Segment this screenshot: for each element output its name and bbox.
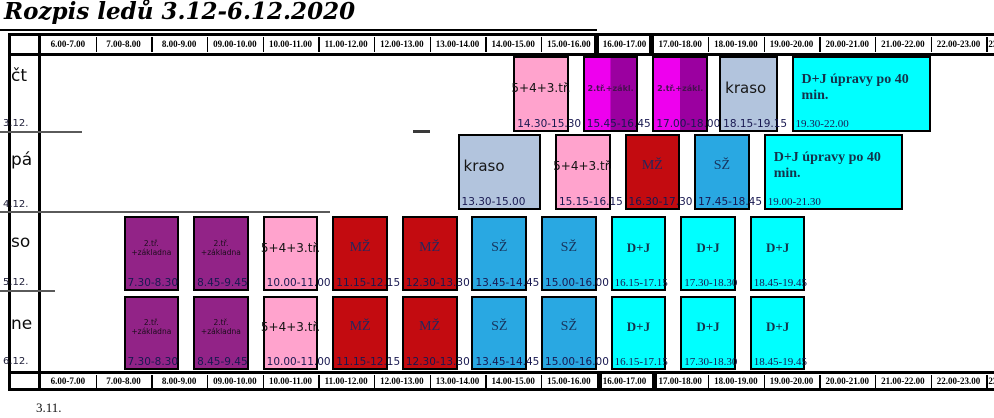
schedule-block[interactable]: 2.tř. +základna8.45-9.45 [193,296,249,370]
block-label: D+J [752,218,804,277]
block-label: MŽ [404,218,456,277]
schedule-block[interactable]: 2.tř.+zákl.15.45-16.45 [583,56,639,132]
block-label: SŽ [543,218,595,277]
time-column-label: 7.00-8.00 [97,36,151,53]
schedule-block[interactable]: D+J18.45-19.45 [750,296,806,370]
block-label: SŽ [473,218,525,277]
day-label-čt: čt [11,66,27,86]
schedule-block[interactable]: 5+4+3.tř.15.15-16.15 [555,134,611,210]
block-label: MŽ [334,218,386,277]
block-time: 17.45-18.45 [698,196,762,208]
schedule-block[interactable]: SŽ15.00-16.00 [541,296,597,370]
block-time: 16.15-17.15 [615,277,668,289]
block-time: 16.15-17.15 [615,356,668,368]
schedule-block[interactable]: MŽ11.15-12.15 [332,216,388,291]
day-label-ne: ne [11,314,32,334]
block-time: 18.15-19.15 [723,118,787,130]
schedule-block[interactable]: D+J17.30-18.30 [680,296,736,370]
footnote: 3.11. [36,400,62,416]
schedule-block[interactable]: D+J16.15-17.15 [611,296,667,370]
block-time: 18.45-19.45 [754,356,807,368]
time-column-label: 11.00-12.00 [319,36,373,53]
block-time: 8.45-9.45 [197,277,248,289]
block-label: SŽ [473,298,525,356]
page-title: Rozpis ledů 3.12-6.12.2020 [4,0,355,25]
block-time: 15.15-16.15 [559,196,623,208]
block-time: 10.00-11.00 [267,277,331,289]
block-label: SŽ [543,298,595,356]
schedule-block[interactable]: 5+4+3.tř.10.00-11.00 [263,216,319,291]
block-label: D+J [682,218,734,277]
time-column-label: 8.00-9.00 [152,36,206,53]
time-column-label: 8.00-9.00 [152,374,206,389]
block-time: 11.15-12.15 [336,277,400,289]
block-time: 13.45-14.45 [475,356,539,368]
time-column-label: 15.00-16.00 [542,36,596,53]
block-time: 12.30-13.30 [406,356,470,368]
time-column-label: 19.00-20.00 [765,374,819,389]
time-column-label: 09.00-10.00 [208,36,262,53]
time-column-label: 12.00-13.00 [375,374,429,389]
block-label: D+J [752,298,804,356]
time-column-label: 14.00-15.00 [486,374,540,389]
block-time: 7.30-8.30 [128,277,179,289]
block-label: 2.tř. +základna [126,218,178,277]
time-column-label: 19.00-20.00 [765,36,819,53]
time-column-label: 12.00-13.00 [375,36,429,53]
time-column-label: 6.00-7.00 [41,374,95,389]
block-label: 2.tř.+zákl. [654,58,706,118]
block-label: D+J úpravy po 40 min. [794,58,929,118]
block-label: 2.tř. +základna [126,298,178,356]
date-label: 5.12. [3,277,28,288]
footer-artifact-band [597,373,602,390]
block-label: 2.tř.+zákl. [585,58,637,118]
block-label: kraso [460,136,540,196]
schedule-block[interactable]: D+J17.30-18.30 [680,216,736,291]
schedule-block[interactable]: 2.tř. +základna7.30-8.30 [124,216,180,291]
block-label: D+J [613,298,665,356]
time-column-label: 16.00-17.00 [598,36,652,53]
block-label: 2.tř. +základna [195,218,247,277]
block-time: 18.45-19.45 [754,277,807,289]
block-time: 14.30-15.30 [517,118,581,130]
block-time: 13.30-15.00 [462,196,526,208]
block-time: 16.30-17.30 [629,196,693,208]
time-column-label: 18.00-19.00 [709,36,763,53]
block-label: 2.tř. +základna [195,298,247,356]
schedule-block[interactable]: MŽ12.30-13.30 [402,296,458,370]
time-column-label: 13.00-14.00 [431,374,485,389]
schedule-block[interactable]: MŽ16.30-17.30 [625,134,681,210]
day-label-pá: pá [11,150,32,170]
schedule-block[interactable]: SŽ13.45-14.45 [471,296,527,370]
time-column-label: 16.00-17.00 [598,374,652,389]
block-time: 8.45-9.45 [197,356,248,368]
block-time: 15.45-16.45 [587,118,651,130]
schedule-block[interactable]: 2.tř. +základna7.30-8.30 [124,296,180,370]
time-column-label: 11.00-12.00 [319,374,373,389]
time-column-label: 10.00-11.00 [264,36,318,53]
time-column-label: 09.00-10.00 [208,374,262,389]
stray-dash-mark [413,130,430,133]
schedule-block[interactable]: SŽ13.45-14.45 [471,216,527,291]
block-time: 19.00-21.30 [768,196,821,208]
time-column-label: 23.00-24.00 [987,36,994,53]
block-time: 15.00-16.00 [545,356,609,368]
schedule-block[interactable]: 5+4+3.tř.10.00-11.00 [263,296,319,370]
date-label: 6.12. [3,356,28,367]
schedule-block[interactable]: D+J úpravy po 40 min.19.00-21.30 [764,134,903,210]
block-label: SŽ [696,136,748,196]
time-column-label: 17.00-18.00 [653,374,707,389]
time-column-label: 10.00-11.00 [264,374,318,389]
schedule-block[interactable]: 2.tř.+zákl.17.00-18.00 [652,56,708,132]
block-label: kraso [721,58,775,118]
block-label: 5+4+3.tř. [557,136,609,196]
header-artifact-band [649,34,654,54]
block-label: MŽ [334,298,386,356]
time-column-label: 22.00-23.00 [932,36,986,53]
time-column-label: 21.00-22.00 [876,374,930,389]
schedule-block[interactable]: 5+4+3.tř.14.30-15.30 [513,56,569,132]
block-label: 5+4+3.tř. [265,298,317,356]
time-column-label: 15.00-16.00 [542,374,596,389]
block-time: 15.00-16.00 [545,277,609,289]
block-time: 10.00-11.00 [267,356,331,368]
block-time: 17.30-18.30 [684,356,737,368]
block-time: 11.15-12.15 [336,356,400,368]
block-label: MŽ [404,298,456,356]
schedule-block[interactable]: D+J18.45-19.45 [750,216,806,291]
block-label: 5+4+3.tř. [515,58,567,118]
schedule-block[interactable]: 2.tř. +základna8.45-9.45 [193,216,249,291]
title-underline [0,29,597,31]
footer-artifact-band [652,373,657,390]
block-time: 17.00-18.00 [656,118,720,130]
row-separator-segment [0,131,82,133]
schedule-block[interactable]: D+J16.15-17.15 [611,216,667,291]
time-column-label: 6.00-7.00 [41,36,95,53]
block-time: 19.30-22.00 [796,118,849,130]
time-column-label: 22.00-23.00 [932,374,986,389]
day-label-so: so [11,232,30,252]
schedule-block[interactable]: MŽ12.30-13.30 [402,216,458,291]
date-label: 4.12. [3,199,28,210]
block-time: 13.45-14.45 [475,277,539,289]
time-column-label: 20.00-21.00 [820,374,874,389]
header-artifact-band [594,34,599,54]
time-column-label: 13.00-14.00 [431,36,485,53]
schedule-block[interactable]: MŽ11.15-12.15 [332,296,388,370]
block-label: D+J úpravy po 40 min. [766,136,901,196]
time-column-label: 7.00-8.00 [97,374,151,389]
time-column-label: 17.00-18.00 [653,36,707,53]
schedule-block[interactable]: SŽ17.45-18.45 [694,134,750,210]
time-column-label: 20.00-21.00 [820,36,874,53]
block-label: D+J [682,298,734,356]
time-column-label: 14.00-15.00 [486,36,540,53]
block-time: 17.30-18.30 [684,277,737,289]
row-separator-segment [0,290,55,292]
block-label: 5+4+3.tř. [265,218,317,277]
block-time: 12.30-13.30 [406,277,470,289]
row-separator-segment [0,211,330,213]
block-label: MŽ [627,136,679,196]
schedule-block[interactable]: kraso18.15-19.15 [719,56,777,132]
time-column-label: 21.00-22.00 [876,36,930,53]
schedule-block[interactable]: D+J úpravy po 40 min.19.30-22.00 [792,56,931,132]
time-column-label: 18.00-19.00 [709,374,763,389]
schedule-canvas: Rozpis ledů 3.12-6.12.2020 6.00-7.007.00… [0,0,994,418]
block-time: 7.30-8.30 [128,356,179,368]
schedule-block[interactable]: kraso13.30-15.00 [458,134,542,210]
block-label: D+J [613,218,665,277]
date-label: 3.12. [3,118,28,129]
schedule-block[interactable]: SŽ15.00-16.00 [541,216,597,291]
time-column-label: 23.00-24.00 [987,374,994,389]
